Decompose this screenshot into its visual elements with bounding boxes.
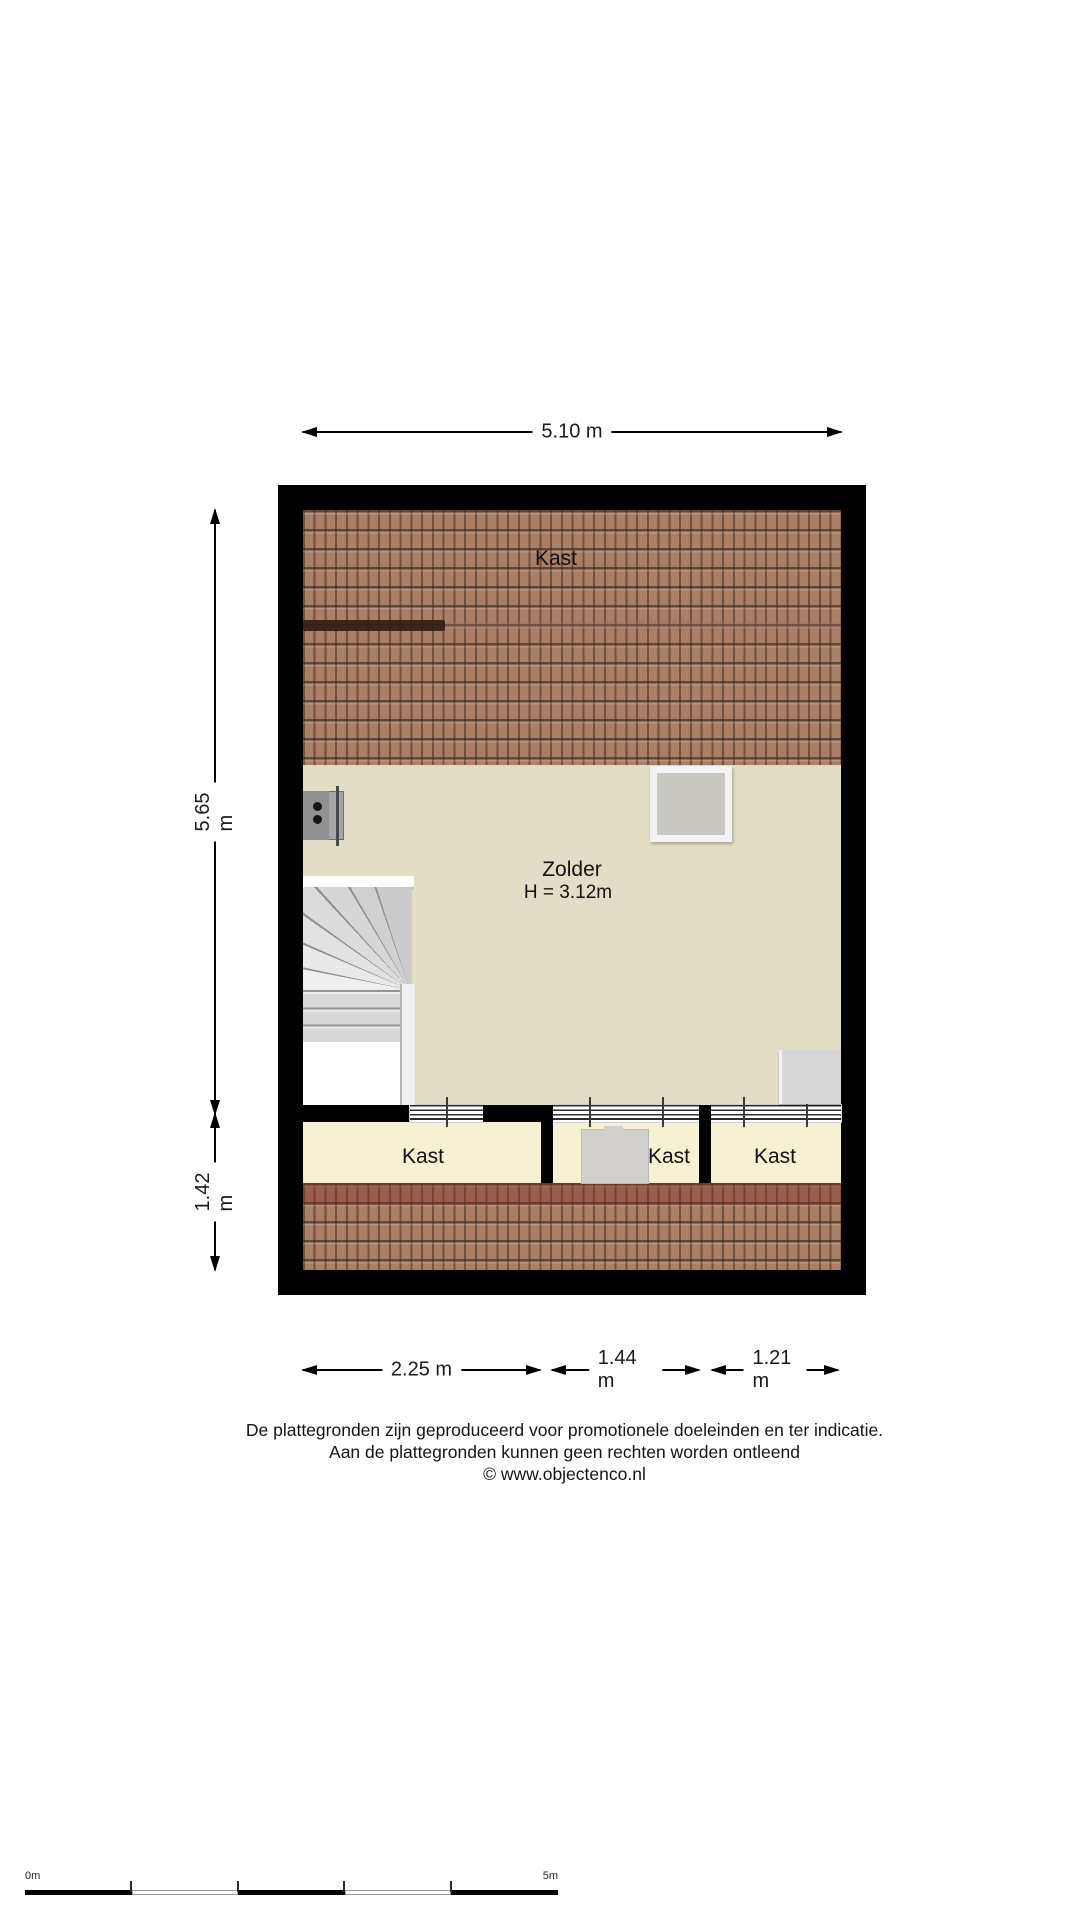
- arrowhead-left-icon: [301, 427, 317, 437]
- boiler-knob-icon: [313, 802, 322, 811]
- dimension-bottom-left: 2.25 m: [303, 1369, 540, 1371]
- arrowhead-left-icon: [710, 1365, 726, 1375]
- arrowhead-right-icon: [685, 1365, 701, 1375]
- stair-winder-treads: [303, 887, 412, 990]
- scalebar-segment: [25, 1890, 132, 1895]
- knee-wall-window: [553, 1105, 699, 1122]
- stairwell-opening: [303, 1042, 400, 1105]
- scalebar-tick: [450, 1881, 452, 1892]
- window-mullion: [662, 1097, 664, 1127]
- roof-area-bottom-ridge: [303, 1183, 841, 1205]
- arrowhead-left-icon: [301, 1365, 317, 1375]
- window-mullion: [589, 1097, 591, 1127]
- dimension-left-lower: 1.42 m: [214, 1114, 216, 1270]
- dimension-top-width: 5.10 m: [303, 431, 841, 433]
- arrowhead-right-icon: [526, 1365, 542, 1375]
- disclaimer-line-3: © www.objectenco.nl: [33, 1463, 1080, 1485]
- knee-wall-segment: [303, 1105, 410, 1122]
- scalebar-tick: [130, 1881, 132, 1892]
- dimension-left-upper-label: 5.65 m: [192, 783, 238, 842]
- arrowhead-down-icon: [210, 1256, 220, 1272]
- scalebar-segment: [238, 1890, 345, 1895]
- closet-divider-wall: [699, 1105, 711, 1183]
- closet-tank-top: [604, 1126, 623, 1132]
- arrowhead-right-icon: [824, 1365, 840, 1375]
- disclaimer-line-1: De plattegronden zijn geproduceerd voor …: [33, 1419, 1080, 1441]
- arrowhead-right-icon: [827, 427, 843, 437]
- arrowhead-up-icon: [210, 508, 220, 524]
- window-mullion: [743, 1097, 745, 1127]
- scalebar-segment: [451, 1890, 558, 1895]
- dimension-bottom-right-label: 1.21 m: [744, 1347, 807, 1393]
- arrowhead-left-icon: [550, 1365, 566, 1375]
- disclaimer-line-2: Aan de plattegronden kunnen geen rechten…: [33, 1441, 1080, 1463]
- room-label-roof-kast: Kast: [535, 547, 577, 571]
- dimension-bottom-left-label: 2.25 m: [382, 1359, 461, 1382]
- boiler-flue-line: [336, 786, 339, 846]
- dimension-left-upper: 5.65 m: [214, 510, 216, 1114]
- scalebar-end-label: 5m: [528, 1870, 558, 1882]
- roof-beam: [303, 620, 445, 631]
- room-height-label: H = 3.12m: [524, 882, 612, 904]
- dimension-bottom-right: 1.21 m: [712, 1369, 838, 1371]
- room-label-kast-left: Kast: [402, 1145, 444, 1169]
- knee-wall-window: [711, 1105, 841, 1122]
- dimension-top-label: 5.10 m: [532, 421, 611, 444]
- scalebar-segment: [345, 1890, 452, 1895]
- scalebar-tick: [343, 1881, 345, 1892]
- scalebar: [25, 1890, 558, 1895]
- closet-tank: [582, 1130, 648, 1183]
- roof-window: [650, 766, 732, 842]
- boiler-knob-icon: [313, 815, 322, 824]
- window-mullion: [446, 1097, 448, 1127]
- stair-straight-treads: [303, 990, 400, 1042]
- floorplan-page: 5.10 m 5.65 m 1.42 m: [0, 0, 1080, 1920]
- scalebar-segment: [132, 1890, 239, 1895]
- scalebar-start-label: 0m: [25, 1870, 40, 1882]
- room-label-kast-middle: Kast: [648, 1145, 690, 1169]
- scalebar-tick: [237, 1881, 239, 1892]
- room-label-kast-right: Kast: [754, 1145, 796, 1169]
- room-label-zolder: Zolder: [542, 858, 602, 882]
- arrowhead-up-icon: [210, 1112, 220, 1128]
- storage-cabinet: [779, 1050, 841, 1104]
- closet-divider-wall: [541, 1105, 553, 1183]
- dimension-bottom-middle-label: 1.44 m: [589, 1347, 663, 1393]
- dimension-bottom-middle: 1.44 m: [552, 1369, 699, 1371]
- roof-beam-faint: [445, 622, 841, 629]
- dimension-left-lower-label: 1.42 m: [192, 1163, 238, 1222]
- disclaimer-text: De plattegronden zijn geproduceerd voor …: [33, 1419, 1080, 1485]
- stair-stringer: [400, 984, 415, 1105]
